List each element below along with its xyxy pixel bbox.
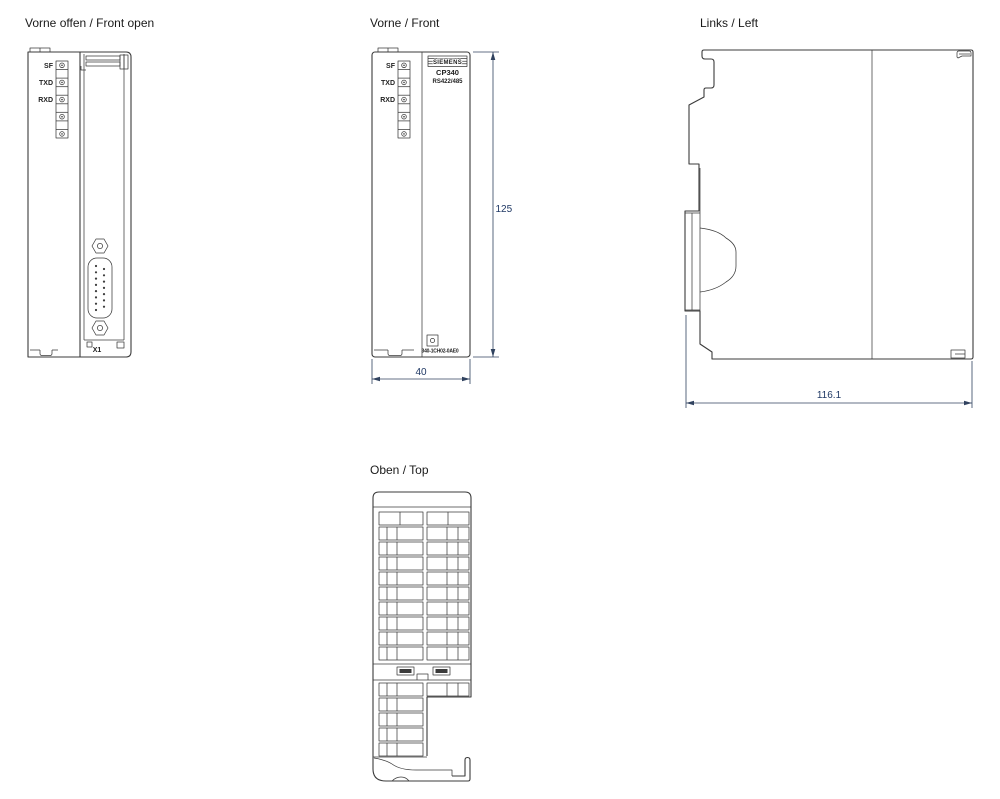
vent-row (379, 557, 423, 570)
vent-row (379, 647, 423, 660)
bus-connector-band (373, 664, 471, 680)
led-label-txd: TXD (39, 80, 53, 87)
bottom-clip (374, 350, 414, 356)
vent-row (427, 617, 469, 630)
vent-row (379, 743, 423, 756)
led-block (398, 61, 410, 138)
din-rail-foot (373, 756, 470, 781)
vent-row (379, 572, 423, 585)
vent-row (427, 632, 469, 645)
view-title-left: Links / Left (700, 16, 759, 30)
door-latch (81, 55, 128, 70)
left-view: 116.1 (685, 50, 973, 408)
dim-depth-value: 116.1 (817, 390, 842, 401)
vent-row (427, 542, 469, 555)
led-label-rxd: RXD (38, 97, 53, 104)
vent-row (379, 617, 423, 630)
vent-row (427, 683, 469, 696)
dsub-shell (88, 258, 112, 318)
hex-screw-top (92, 239, 108, 253)
dsub-connector-x1 (88, 239, 112, 335)
led-txd (60, 80, 65, 85)
brand-text: SIEMENS (433, 60, 462, 66)
mode-switch (427, 335, 438, 346)
vent-row (427, 572, 469, 585)
led-rxd (402, 97, 407, 102)
dimension-depth: 116.1 (686, 315, 972, 408)
vent-row (379, 587, 423, 600)
vent-row (379, 632, 423, 645)
led-spare (402, 132, 407, 137)
vent-row (379, 713, 423, 726)
vent-row (427, 557, 469, 570)
order-number: 340-1CH02-0AE0 (422, 349, 459, 355)
vent-row (379, 527, 423, 540)
interface-type: RS422/485 (432, 79, 463, 85)
top-outline (373, 492, 471, 756)
view-title-front: Vorne / Front (370, 16, 440, 30)
hex-screw-bottom (92, 321, 108, 335)
product-name: CP340 (436, 68, 459, 77)
dim-height-value: 125 (496, 204, 513, 215)
module-body (28, 52, 80, 357)
dim-width-value: 40 (415, 367, 427, 378)
led-sf (402, 63, 407, 68)
led-label-txd: TXD (381, 80, 395, 87)
drawing-canvas: Vorne offen / Front open (0, 0, 1000, 799)
led-block (56, 61, 68, 138)
dsub-side-view (685, 168, 736, 344)
dimension-width: 40 (372, 359, 470, 384)
led-sf (60, 63, 65, 68)
vent-row (379, 512, 423, 525)
door-foot (87, 342, 92, 347)
vent-row (379, 542, 423, 555)
dimension-height: 125 (473, 52, 513, 357)
product-label-plate: SIEMENS CP340 RS422/485 (428, 56, 467, 85)
dimension-drawing-page: Vorne offen / Front open (0, 0, 1000, 799)
door-foot (117, 342, 124, 348)
led-label-sf: SF (44, 63, 54, 70)
led-rxd (60, 97, 65, 102)
led-label-rxd: RXD (380, 97, 395, 104)
vent-row (427, 647, 469, 660)
view-title-front-open: Vorne offen / Front open (25, 16, 154, 30)
top-view (373, 492, 471, 781)
vent-row (427, 527, 469, 540)
module-door (80, 52, 131, 357)
profile-outline (685, 50, 973, 359)
led-label-sf: SF (386, 63, 396, 70)
vent-row (427, 602, 469, 615)
bottom-clip (30, 350, 58, 356)
vent-grid-upper (379, 512, 469, 660)
vent-row (379, 683, 423, 696)
vent-row (427, 512, 469, 525)
led-spare (402, 114, 407, 119)
bottom-right-clip (951, 350, 965, 358)
vent-row (379, 728, 423, 741)
front-open-view: SF TXD RXD X1 (28, 48, 131, 357)
connector-label-x1: X1 (93, 347, 102, 354)
led-txd (402, 80, 407, 85)
vent-row (379, 602, 423, 615)
front-view: SF TXD RXD SIEMENS CP340 RS422/485 340-1… (372, 48, 513, 384)
led-spare (60, 132, 65, 137)
vent-row (379, 698, 423, 711)
top-right-clip (957, 51, 971, 58)
view-title-top: Oben / Top (370, 463, 429, 477)
led-spare (60, 114, 65, 119)
vent-grid-lower (379, 683, 469, 756)
dsub-pins (95, 265, 105, 311)
vent-row (427, 587, 469, 600)
